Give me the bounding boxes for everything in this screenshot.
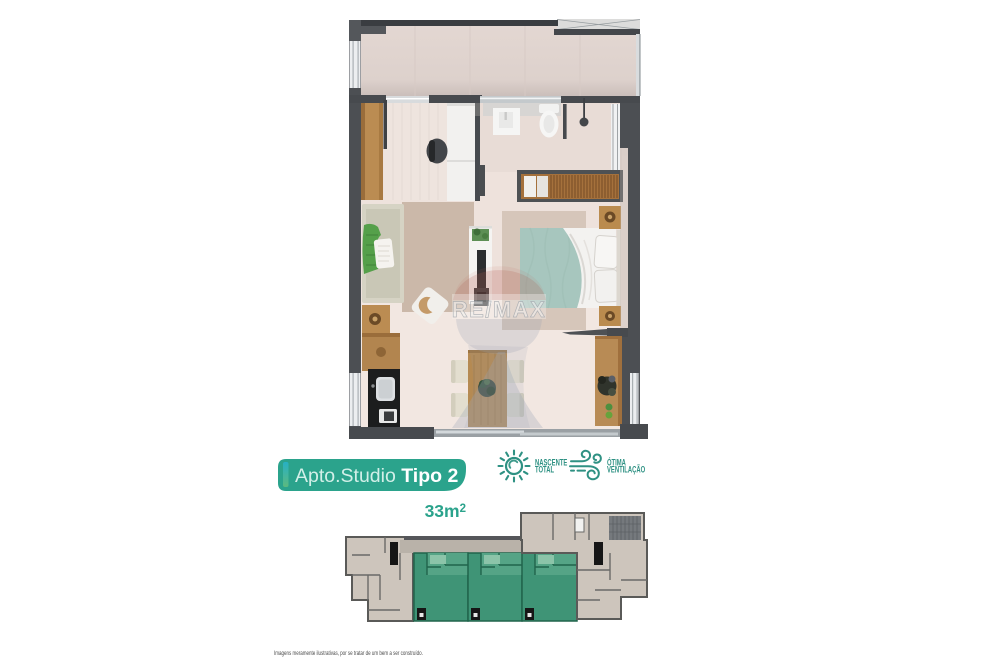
svg-text:VENTILAÇÃO: VENTILAÇÃO bbox=[607, 464, 645, 475]
svg-text:Imagens meramente ilustrativas: Imagens meramente ilustrativas, por se t… bbox=[274, 650, 423, 657]
svg-text:Apto.Studio Tipo 2: Apto.Studio Tipo 2 bbox=[295, 465, 458, 487]
svg-text:RE/MAX: RE/MAX bbox=[452, 297, 547, 322]
svg-text:TOTAL: TOTAL bbox=[535, 464, 554, 475]
svg-text:33m2: 33m2 bbox=[425, 501, 466, 521]
